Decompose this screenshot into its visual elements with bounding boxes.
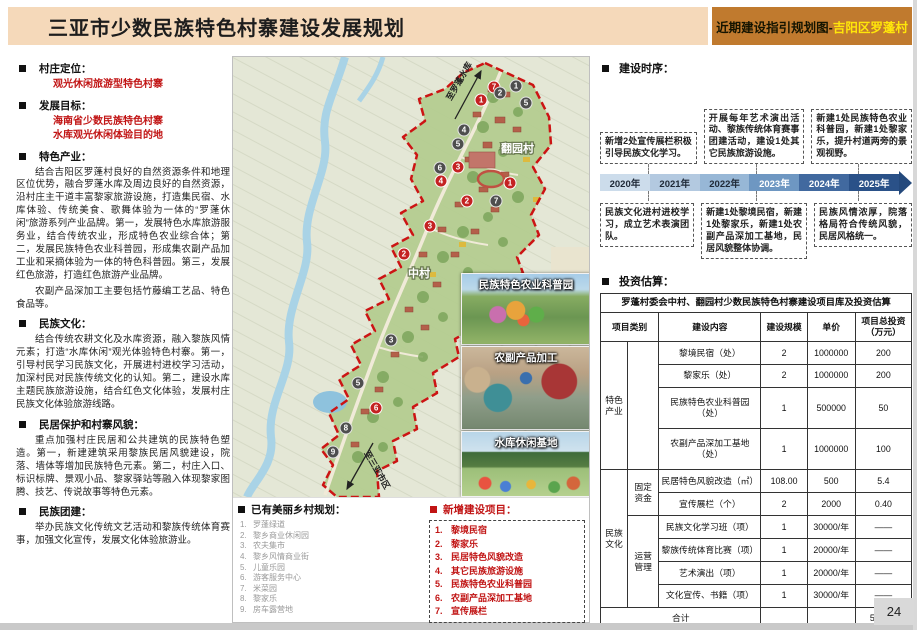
pond <box>313 391 347 413</box>
table-cell: 200 <box>855 342 911 365</box>
legend-item-label: 黎家乐 <box>451 538 478 552</box>
table-cell: 民居特色风貌改造（㎡） <box>659 470 761 493</box>
bullet-square-icon <box>238 506 245 513</box>
village-label-top: 翻园村 <box>501 141 534 155</box>
connector-line <box>756 164 757 174</box>
section-highlight-text: 海南省少数民族特色村寨 <box>53 115 230 130</box>
legend-item-number: 1. <box>240 520 253 531</box>
section-paragraph: 结合吉阳区罗蓬村良好的自然资源条件和地理区位优势，融合罗蓬水库及周边良好的自然资… <box>16 167 230 283</box>
map-marker: 3 <box>385 333 398 346</box>
legend-item-label: 房车露营地 <box>253 605 293 616</box>
right-panel: 建设时序： 新增2处宣传展栏积极引导民族文化学习。开展每年艺术演出活动、黎族传统… <box>600 56 912 622</box>
timeline-phase-note: 新建1处民族特色农业科普园，新建1处黎家乐，提升村道两旁的景观视野。 <box>811 109 912 165</box>
table-cell: 黎族传统体育比赛（项） <box>659 539 761 562</box>
legend-new-heading: 新增建设项目： <box>429 502 585 517</box>
village-label-bottom: 中村 <box>408 266 430 280</box>
timeline-year: 2025年 <box>849 174 899 191</box>
legend-item-label: 其它民族旅游设施 <box>451 565 523 579</box>
photo-caption: 水库休闲基地 <box>462 435 589 450</box>
table-cell: 0.40 <box>855 493 911 516</box>
timeline-phase-note: 新建1处黎境民宿，新建1处黎家乐，新建1处农副产品深加工基地，民居风貌整体协调。 <box>701 203 807 259</box>
page-subtitle: 近期建设指引规划图-吉阳区罗蓬村 <box>712 7 912 45</box>
timeline-heading: 建设时序： <box>600 60 912 76</box>
table-cell: 特色产业 <box>601 342 628 470</box>
col-header-content: 建设内容 <box>659 313 761 342</box>
table-row: 民族文化固定资金民居特色风貌改造（㎡）108.005005.4 <box>601 470 912 493</box>
section-paragraph: 结合传统农耕文化及水库资源，融入黎族风情元素；打造“水库休闲”观光体验特色村寨。… <box>16 334 230 411</box>
legend-item-number: 3. <box>435 551 451 565</box>
legend-item-label: 黎境民宿 <box>451 524 487 538</box>
legend-item: 8.黎家乐 <box>240 594 429 605</box>
timeline-phase-note: 民族文化进村进校学习，成立艺术表演团队。 <box>600 203 694 247</box>
timeline-connectors-top <box>600 164 912 174</box>
section-title: 民族团建： <box>39 504 92 519</box>
legend-item: 4.其它民族旅游设施 <box>435 565 579 579</box>
timeline-phase-note: 新增2处宣传展栏积极引导民族文化学习。 <box>600 132 697 164</box>
legend-item-label: 农夫集市 <box>253 541 285 552</box>
bullet-square-icon <box>19 421 26 428</box>
col-header-category: 项目类别 <box>601 313 659 342</box>
table-cell: 固定资金 <box>628 470 659 516</box>
map-marker: 5 <box>451 138 464 151</box>
map-marker: 5 <box>519 97 532 110</box>
map-legend: 已有美丽乡村规划： 1.罗蓬绿道2.黎乡商业休闲园3.农夫集市4.黎乡风情商业街… <box>233 497 589 622</box>
timeline-heading-text: 建设时序： <box>619 60 674 76</box>
table-cell: 1 <box>761 562 807 585</box>
map-marker: 3 <box>423 219 436 232</box>
table-title-row: 罗蓬村委会中村、翻园村少数民族特色村寨建设项目库及投资估算 <box>601 294 912 313</box>
legend-item: 2.黎乡商业休闲园 <box>240 531 429 542</box>
timeline-phase-note: 民族风情浓厚，院落格局符合传统风貌，民居风格统一。 <box>814 203 912 247</box>
legend-item-number: 2. <box>435 538 451 552</box>
legend-item-label: 民族特色农业科普园 <box>451 578 532 592</box>
table-cell: 200 <box>855 364 911 387</box>
legend-item-number: 4. <box>435 565 451 579</box>
map-marker: 3 <box>451 161 464 174</box>
table-cell: 2 <box>761 493 807 516</box>
section: 村庄定位：观光休闲旅游型特色村寨 <box>16 61 230 93</box>
legend-item: 5.民族特色农业科普园 <box>435 578 579 592</box>
legend-item-number: 4. <box>240 552 253 563</box>
table-cell: 1 <box>761 429 807 470</box>
bullet-square-icon <box>602 278 609 285</box>
table-cell: 108.00 <box>761 470 807 493</box>
table-cell <box>628 342 659 470</box>
connector-line <box>858 191 859 201</box>
col-header-scale: 建设规模 <box>761 313 807 342</box>
legend-item-number: 2. <box>240 531 253 542</box>
timeline-bottom-boxes: 民族文化进村进校学习，成立艺术表演团队。新建1处黎境民宿，新建1处黎家乐，新建1… <box>600 203 912 269</box>
legend-item: 7.米菜园 <box>240 584 429 595</box>
legend-item: 1.罗蓬绿道 <box>240 520 429 531</box>
timeline-year: 2021年 <box>650 174 700 191</box>
table-cell: —— <box>855 516 911 539</box>
investment-heading-text: 投资估算： <box>619 273 674 289</box>
legend-item-number: 6. <box>435 592 451 606</box>
legend-item-number: 7. <box>240 584 253 595</box>
table-cell: 黎境民宿（处） <box>659 342 761 365</box>
section-title: 发展目标： <box>39 98 92 113</box>
legend-item: 6.农副产品深加工基地 <box>435 592 579 606</box>
section-heading: 特色产业： <box>16 149 230 164</box>
table-cell: 民族文化 <box>601 470 628 608</box>
table-cell: 30000/年 <box>807 584 855 607</box>
section-heading: 村庄定位： <box>16 61 230 76</box>
map-marker: 7 <box>490 194 503 207</box>
legend-new: 新增建设项目： 1.黎境民宿2.黎家乐3.民居特色风貌改造4.其它民族旅游设施5… <box>429 502 585 622</box>
table-cell: 1000000 <box>807 364 855 387</box>
legend-item: 9.房车露营地 <box>240 605 429 616</box>
timeline-year: 2020年 <box>600 174 650 191</box>
section-heading: 民族团建： <box>16 504 230 519</box>
section-title: 民居保护和村寨风貌： <box>39 417 144 432</box>
table-cell: 1 <box>761 516 807 539</box>
map-marker: 1 <box>510 80 523 93</box>
map-area: 至罗蓬水库 至三亚市区 翻园村 中村 民族特色农业科普园 农副产品加工 水库休闲… <box>233 57 589 497</box>
investment-heading: 投资估算： <box>600 273 912 289</box>
table-cell: 文化宣传、书籍（项） <box>659 584 761 607</box>
connector-line <box>756 191 757 201</box>
timeline-year: 2024年 <box>799 174 849 191</box>
section-heading: 民居保护和村寨风貌： <box>16 417 230 432</box>
map-marker: 9 <box>327 446 340 459</box>
section-paragraph: 重点加强村庄民居和公共建筑的民族特色塑造。第一，新建建筑采用黎族民居风貌建设，院… <box>16 435 230 500</box>
table-cell: 2 <box>761 364 807 387</box>
section-heading: 发展目标： <box>16 98 230 113</box>
connector-line <box>648 164 649 174</box>
map-marker: 2 <box>397 248 410 261</box>
table-cell: 50 <box>855 387 911 428</box>
legend-item-label: 黎乡商业休闲园 <box>253 531 309 542</box>
legend-item-label: 黎乡风情商业街 <box>253 552 309 563</box>
table-cell: 运营管理 <box>628 516 659 608</box>
legend-item-label: 农副产品深加工基地 <box>451 592 532 606</box>
map-marker: 2 <box>460 194 473 207</box>
col-header-total: 项目总投资（万元） <box>855 313 911 342</box>
table-cell: 1 <box>761 539 807 562</box>
table-cell: —— <box>855 539 911 562</box>
table-cell: 30000/年 <box>807 516 855 539</box>
page-number: 24 <box>874 598 914 625</box>
legend-item-number: 6. <box>240 573 253 584</box>
table-title: 罗蓬村委会中村、翻园村少数民族特色村寨建设项目库及投资估算 <box>601 294 912 313</box>
section-heading: 民族文化： <box>16 316 230 331</box>
legend-existing-title: 已有美丽乡村规划： <box>251 502 346 517</box>
section-title: 村庄定位： <box>39 61 92 76</box>
table-cell: 500000 <box>807 387 855 428</box>
legend-item: 5.儿童乐园 <box>240 563 429 574</box>
legend-item-number: 7. <box>435 605 451 619</box>
slide-page: 三亚市少数民族特色村寨建设发展规划 近期建设指引规划图-吉阳区罗蓬村 村庄定位：… <box>0 0 917 630</box>
legend-item-label: 米菜园 <box>253 584 277 595</box>
photo-caption: 民族特色农业科普园 <box>462 277 589 292</box>
table-cell: 2 <box>761 342 807 365</box>
bullet-square-icon <box>19 102 26 109</box>
section-paragraph: 举办民族文化传统文艺活动和黎族传统体育赛事，加强文化宣传，发展文化体验旅游业。 <box>16 522 230 548</box>
bullet-square-icon <box>430 506 437 513</box>
photo-agri-science-park: 民族特色农业科普园 <box>461 273 589 345</box>
map-marker: 6 <box>370 402 383 415</box>
section-title: 民族文化： <box>39 316 92 331</box>
map-marker: 4 <box>434 175 447 188</box>
photo-reservoir-leisure-base: 水库休闲基地 <box>461 431 589 497</box>
map-marker: 5 <box>351 377 364 390</box>
section: 发展目标：海南省少数民族特色村寨水库观光休闲体验目的地 <box>16 98 230 144</box>
section: 民族团建：举办民族文化传统文艺活动和黎族传统体育赛事，加强文化宣传，发展文化体验… <box>16 504 230 548</box>
investment-table: 罗蓬村委会中村、翻园村少数民族特色村寨建设项目库及投资估算 项目类别 建设内容 … <box>600 293 912 630</box>
legend-item: 2.黎家乐 <box>435 538 579 552</box>
section-title: 特色产业： <box>39 149 92 164</box>
table-cell: 500 <box>807 470 855 493</box>
legend-item: 3.民居特色风貌改造 <box>435 551 579 565</box>
section: 特色产业：结合吉阳区罗蓬村良好的自然资源条件和地理区位优势，融合罗蓬水库及周边良… <box>16 149 230 312</box>
table-cell: 100 <box>855 429 911 470</box>
map-marker: 2 <box>494 87 507 100</box>
table-cell: 民族特色农业科普园（处） <box>659 387 761 428</box>
col-header-price: 单价 <box>807 313 855 342</box>
left-sections: 村庄定位：观光休闲旅游型特色村寨发展目标：海南省少数民族特色村寨水库观光休闲体验… <box>16 56 230 622</box>
legend-item-number: 1. <box>435 524 451 538</box>
table-cell: —— <box>855 562 911 585</box>
bullet-square-icon <box>19 508 26 515</box>
map-marker: 1 <box>475 94 488 107</box>
investment-table-body: 特色产业黎境民宿（处）21000000200黎家乐（处）21000000200民… <box>601 342 912 630</box>
photo-product-processing: 农副产品加工 <box>461 346 589 430</box>
table-cell: 1000000 <box>807 429 855 470</box>
legend-item-number: 9. <box>240 605 253 616</box>
section: 民居保护和村寨风貌：重点加强村庄民居和公共建筑的民族特色塑造。第一，新建建筑采用… <box>16 417 230 500</box>
legend-item: 3.农夫集市 <box>240 541 429 552</box>
table-row: 运营管理民族文化学习班（项）130000/年—— <box>601 516 912 539</box>
timeline-connectors-bottom <box>600 191 912 201</box>
table-cell: 1 <box>761 387 807 428</box>
legend-item-number: 5. <box>435 578 451 592</box>
table-cell: 农副产品深加工基地（处） <box>659 429 761 470</box>
map-marker: 1 <box>503 176 516 189</box>
bullet-square-icon <box>19 320 26 327</box>
table-cell: 黎家乐（处） <box>659 364 761 387</box>
legend-item-number: 5. <box>240 563 253 574</box>
legend-item: 1.黎境民宿 <box>435 524 579 538</box>
legend-item-label: 儿童乐园 <box>253 563 285 574</box>
legend-item: 6.游客服务中心 <box>240 573 429 584</box>
legend-item-number: 8. <box>240 594 253 605</box>
connector-line <box>858 164 859 174</box>
table-cell: 1 <box>761 584 807 607</box>
subtitle-prefix: 近期建设指引规划图- <box>716 17 833 36</box>
legend-item: 7.宣传展栏 <box>435 605 579 619</box>
section: 民族文化：结合传统农耕文化及水库资源，融入黎族风情元素；打造“水库休闲”观光体验… <box>16 316 230 411</box>
sports-field <box>478 171 504 187</box>
map-marker: 4 <box>458 124 471 137</box>
table-cell: 艺术演出（项） <box>659 562 761 585</box>
legend-item-label: 黎家乐 <box>253 594 277 605</box>
right-strip <box>913 0 917 630</box>
legend-item: 4.黎乡风情商业街 <box>240 552 429 563</box>
table-header-row: 项目类别 建设内容 建设规模 单价 项目总投资（万元） <box>601 313 912 342</box>
map-marker: 6 <box>433 161 446 174</box>
table-cell: 2000 <box>807 493 855 516</box>
page-title: 三亚市少数民族特色村寨建设发展规划 <box>8 7 708 45</box>
table-cell: 20000/年 <box>807 562 855 585</box>
legend-existing: 已有美丽乡村规划： 1.罗蓬绿道2.黎乡商业休闲园3.农夫集市4.黎乡风情商业街… <box>237 502 429 622</box>
legend-item-label: 民居特色风貌改造 <box>451 551 523 565</box>
school-building <box>469 152 495 168</box>
bullet-square-icon <box>19 153 26 160</box>
map-marker: 8 <box>339 421 352 434</box>
subtitle-highlight: 吉阳区罗蓬村 <box>833 17 908 36</box>
table-cell: 20000/年 <box>807 539 855 562</box>
timeline-phase-note: 开展每年艺术演出活动、黎族传统体育赛事团建活动，建设1处其它民族旅游设施。 <box>704 109 805 165</box>
legend-existing-items: 1.罗蓬绿道2.黎乡商业休闲园3.农夫集市4.黎乡风情商业街5.儿童乐园6.游客… <box>237 520 429 616</box>
table-cell: 民族文化学习班（项） <box>659 516 761 539</box>
map-panel: 至罗蓬水库 至三亚市区 翻园村 中村 民族特色农业科普园 农副产品加工 水库休闲… <box>232 56 590 623</box>
legend-item-label: 游客服务中心 <box>253 573 301 584</box>
table-cell: 宣传展栏（个） <box>659 493 761 516</box>
photo-caption: 农副产品加工 <box>462 350 589 365</box>
timeline-top-boxes: 新增2处宣传展栏积极引导民族文化学习。开展每年艺术演出活动、黎族传统体育赛事团建… <box>600 80 912 164</box>
connector-line <box>648 191 649 201</box>
bottom-strip <box>0 623 917 630</box>
legend-item-label: 罗蓬绿道 <box>253 520 285 531</box>
legend-item-label: 宣传展栏 <box>451 605 487 619</box>
section-paragraph: 农副产品深加工主要包括竹藤编工艺品、特色食品等。 <box>16 286 230 312</box>
bullet-square-icon <box>602 65 609 72</box>
legend-new-items: 1.黎境民宿2.黎家乐3.民居特色风貌改造4.其它民族旅游设施5.民族特色农业科… <box>429 520 585 623</box>
section-highlight-text: 观光休闲旅游型特色村寨 <box>53 78 230 93</box>
legend-new-title: 新增建设项目： <box>443 502 517 517</box>
legend-existing-heading: 已有美丽乡村规划： <box>237 502 429 517</box>
section-highlight-text: 水库观光休闲体验目的地 <box>53 129 230 144</box>
timeline-year: 2023年 <box>749 174 799 191</box>
timeline-year: 2022年 <box>700 174 750 191</box>
table-cell: 5.4 <box>855 470 911 493</box>
legend-item-number: 3. <box>240 541 253 552</box>
table-row: 特色产业黎境民宿（处）21000000200 <box>601 342 912 365</box>
bullet-square-icon <box>19 65 26 72</box>
table-cell: 1000000 <box>807 342 855 365</box>
timeline-bar: 2020年2021年2022年2023年2024年2025年 <box>600 174 912 191</box>
